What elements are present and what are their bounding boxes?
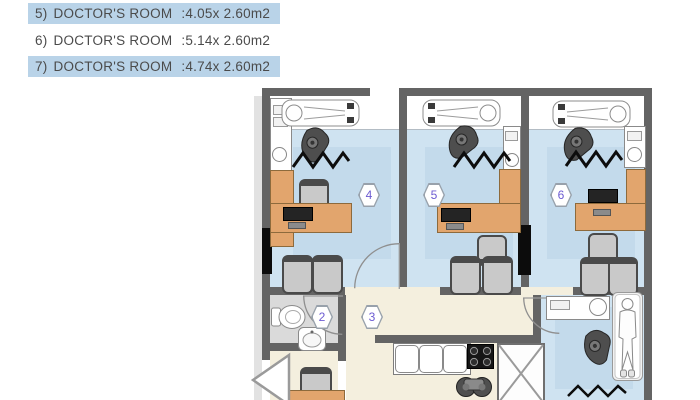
legend-room-name: DOCTOR'S ROOM [54,6,173,21]
legend-row-7: 7)DOCTOR'S ROOM:4.74x 2.60m2 [28,56,280,77]
desk [626,169,646,205]
room-number: 6 [550,183,572,207]
cabinet-unit [419,345,443,373]
zigzag-icon [292,147,350,173]
legend-row-6: 6)DOCTOR'S ROOM:5.14x 2.60m2 [28,30,280,51]
floor-plan: 4 [255,85,657,400]
legend-room-name: DOCTOR'S ROOM [54,59,173,74]
legend-room-number: 5) [35,6,48,21]
shaft-cross [497,343,545,400]
waiting-chair [312,255,343,294]
wall-left [262,88,270,360]
wall-divider-4-5 [399,96,407,287]
wall-top-opening [370,88,399,96]
waiting-chair [580,257,610,296]
cabinet-unit [443,345,467,373]
wheelchair-icon [455,372,493,400]
room-badge: 3 [361,305,383,329]
waiting-chair [608,257,638,296]
sink-icon [272,147,287,162]
room-badge: 6 [550,183,572,207]
monitor-icon [283,207,313,221]
monitor-icon [441,208,471,222]
desk [575,203,646,231]
cabinet-fixture [505,131,518,141]
room-number: 5 [423,183,445,207]
dental-chair-icon [281,98,361,128]
zigzag-icon [565,146,623,172]
floor-plan-page: 5)DOCTOR'S ROOM:4.05x 2.60m2 6)DOCTOR'S … [0,0,700,400]
stove-icon [467,344,494,369]
door-arc [354,243,400,289]
legend-row-5: 5)DOCTOR'S ROOM:4.05x 2.60m2 [28,3,280,24]
room-number: 3 [361,305,383,329]
monitor-icon [588,189,618,203]
room-badge: 2 [311,305,333,329]
dental-chair-icon [551,99,631,129]
waiting-chair [450,256,481,295]
legend-room-size: :5.14x 2.60m2 [181,33,270,48]
patient-bed-icon [612,292,643,381]
zigzag-icon [567,383,627,400]
legend-room-name: DOCTOR'S ROOM [54,33,173,48]
sink-icon [627,147,642,162]
desk [499,169,521,205]
legend-room-size: :4.74x 2.60m2 [181,59,270,74]
room-number: 4 [358,183,380,207]
entrance-arrow-icon [249,353,291,400]
floor-hall-opening [521,287,573,295]
keyboard-icon [593,209,611,216]
room-number: 2 [311,305,333,329]
waiting-chair [482,256,513,295]
cabinet-unit [395,345,419,373]
desk [287,390,345,400]
sink-icon [589,298,607,316]
legend-room-number: 7) [35,59,48,74]
room-badge: 4 [358,183,380,207]
room-badge: 5 [423,183,445,207]
keyboard-icon [288,222,306,229]
wall-top [262,88,652,96]
wall-kitchen-top [375,335,541,343]
waiting-chair [282,255,313,294]
cabinet-fixture [550,300,570,310]
cabinet-fixture [627,131,642,141]
legend-room-size: :4.05x 2.60m2 [181,6,270,21]
legend-room-number: 6) [35,33,48,48]
keyboard-icon [446,223,464,230]
